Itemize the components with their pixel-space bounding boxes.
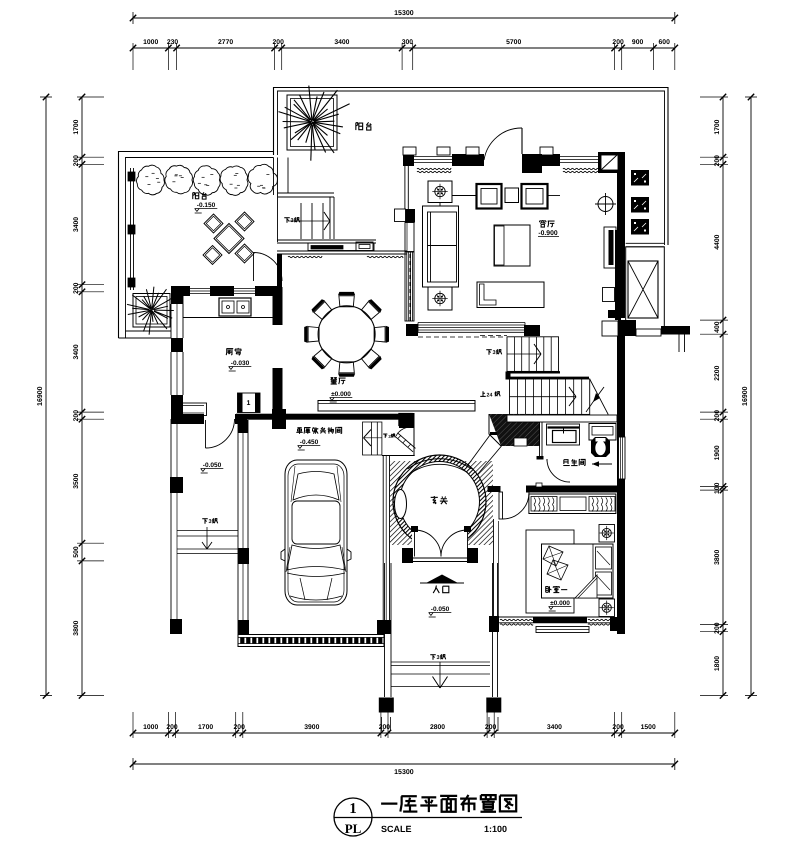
svg-text:200: 200: [714, 155, 721, 167]
svg-text:1800: 1800: [714, 656, 721, 671]
svg-text:200: 200: [73, 282, 80, 294]
svg-text:1:100: 1:100: [484, 824, 507, 834]
svg-text:1700: 1700: [198, 724, 213, 731]
svg-text:3400: 3400: [334, 39, 349, 46]
svg-text:3900: 3900: [304, 724, 319, 731]
svg-text:3: 3: [208, 519, 211, 525]
svg-text:±0.000: ±0.000: [331, 391, 351, 398]
svg-text:2770: 2770: [218, 39, 233, 46]
svg-text:16900: 16900: [37, 386, 44, 406]
svg-text:-0.030: -0.030: [231, 360, 250, 367]
svg-text:2200: 2200: [714, 365, 721, 380]
svg-text:3: 3: [492, 350, 495, 356]
svg-text:3: 3: [290, 218, 293, 224]
svg-text:1500: 1500: [641, 724, 656, 731]
svg-text:500: 500: [73, 546, 80, 558]
svg-text:100: 100: [714, 482, 721, 494]
svg-text:3400: 3400: [73, 217, 80, 232]
svg-text:900: 900: [632, 39, 644, 46]
svg-text:1000: 1000: [143, 39, 158, 46]
svg-text:200: 200: [714, 622, 721, 634]
svg-text:1000: 1000: [143, 724, 158, 731]
svg-text:200: 200: [234, 724, 246, 731]
svg-text:24: 24: [487, 392, 493, 398]
svg-text:200: 200: [612, 724, 624, 731]
svg-text:200: 200: [166, 724, 178, 731]
svg-text:200: 200: [73, 410, 80, 422]
svg-text:1700: 1700: [714, 119, 721, 134]
svg-text:1700: 1700: [73, 119, 80, 134]
svg-text:16900: 16900: [742, 386, 749, 406]
svg-text:300: 300: [402, 39, 414, 46]
svg-text:4400: 4400: [714, 234, 721, 249]
svg-text:15300: 15300: [394, 10, 414, 17]
svg-text:-0.050: -0.050: [203, 462, 222, 469]
svg-text:200: 200: [485, 724, 497, 731]
svg-text:3400: 3400: [547, 724, 562, 731]
svg-text:600: 600: [659, 39, 671, 46]
svg-text:200: 200: [379, 724, 391, 731]
svg-text:200: 200: [273, 39, 285, 46]
svg-text:200: 200: [612, 39, 624, 46]
svg-text:-0.900: -0.900: [538, 230, 557, 237]
svg-text:3800: 3800: [714, 550, 721, 565]
svg-text:±0.000: ±0.000: [550, 600, 570, 607]
svg-text:230: 230: [167, 39, 179, 46]
svg-text:200: 200: [73, 155, 80, 167]
svg-text:200: 200: [714, 410, 721, 422]
svg-text:PL: PL: [345, 821, 362, 836]
svg-text:3: 3: [436, 655, 439, 661]
svg-text:2800: 2800: [430, 724, 445, 731]
svg-text:3400: 3400: [73, 344, 80, 359]
svg-text:-0.150: -0.150: [197, 202, 216, 209]
svg-text:15300: 15300: [394, 769, 414, 776]
svg-text:SCALE: SCALE: [381, 824, 412, 834]
svg-text:5700: 5700: [506, 39, 521, 46]
svg-text:3800: 3800: [73, 620, 80, 635]
svg-text:1: 1: [247, 400, 251, 407]
svg-text:1900: 1900: [714, 445, 721, 460]
svg-text:3500: 3500: [73, 473, 80, 488]
svg-text:-0.450: -0.450: [300, 439, 319, 446]
svg-text:-0.050: -0.050: [431, 606, 450, 613]
svg-text:400: 400: [714, 321, 721, 333]
svg-text:1: 1: [349, 801, 357, 817]
